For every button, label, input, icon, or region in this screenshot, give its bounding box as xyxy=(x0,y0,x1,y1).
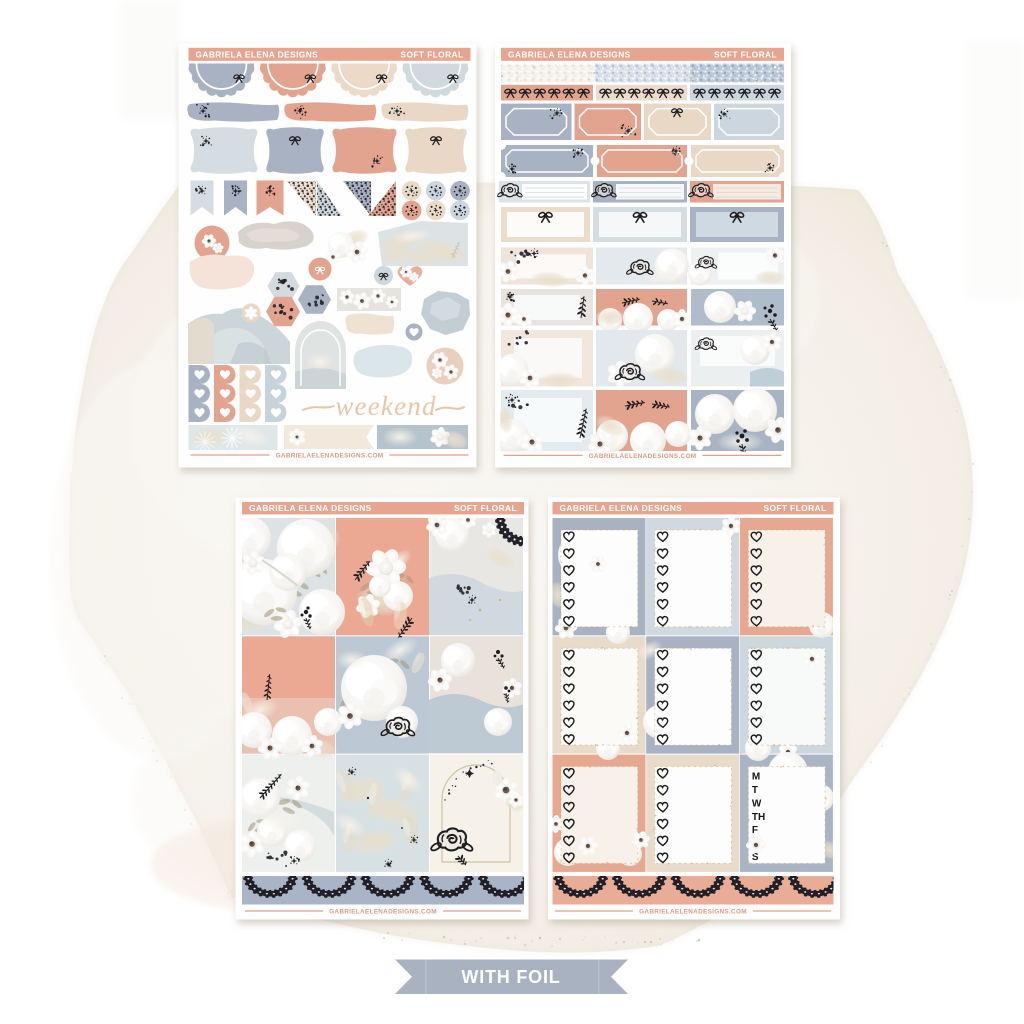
svg-text:SOFT FLORAL: SOFT FLORAL xyxy=(454,503,517,513)
svg-text:M: M xyxy=(752,772,760,783)
svg-text:GABRIELA ELENA DESIGNS: GABRIELA ELENA DESIGNS xyxy=(508,49,631,59)
svg-text:GABRIELA ELENA DESIGNS: GABRIELA ELENA DESIGNS xyxy=(560,503,683,513)
svg-text:GABRIELAELENADESIGNS.COM: GABRIELAELENADESIGNS.COM xyxy=(276,452,384,459)
svg-text:weekend: weekend xyxy=(335,391,436,421)
svg-text:SOFT FLORAL: SOFT FLORAL xyxy=(714,49,777,59)
svg-text:W: W xyxy=(752,798,762,809)
svg-text:T: T xyxy=(752,785,758,796)
svg-text:WITH FOIL: WITH FOIL xyxy=(461,967,560,987)
svg-text:GABRIELA ELENA DESIGNS: GABRIELA ELENA DESIGNS xyxy=(249,503,372,513)
svg-text:SOFT FLORAL: SOFT FLORAL xyxy=(763,503,826,513)
svg-text:GABRIELAELENADESIGNS.COM: GABRIELAELENADESIGNS.COM xyxy=(639,908,747,915)
svg-text:GABRIELA ELENA DESIGNS: GABRIELA ELENA DESIGNS xyxy=(196,49,319,59)
svg-text:SOFT FLORAL: SOFT FLORAL xyxy=(400,49,463,59)
svg-text:TH: TH xyxy=(752,812,765,823)
svg-text:GABRIELAELENADESIGNS.COM: GABRIELAELENADESIGNS.COM xyxy=(329,908,437,915)
svg-text:GABRIELAELENADESIGNS.COM: GABRIELAELENADESIGNS.COM xyxy=(589,453,697,460)
svg-text:F: F xyxy=(752,825,758,836)
